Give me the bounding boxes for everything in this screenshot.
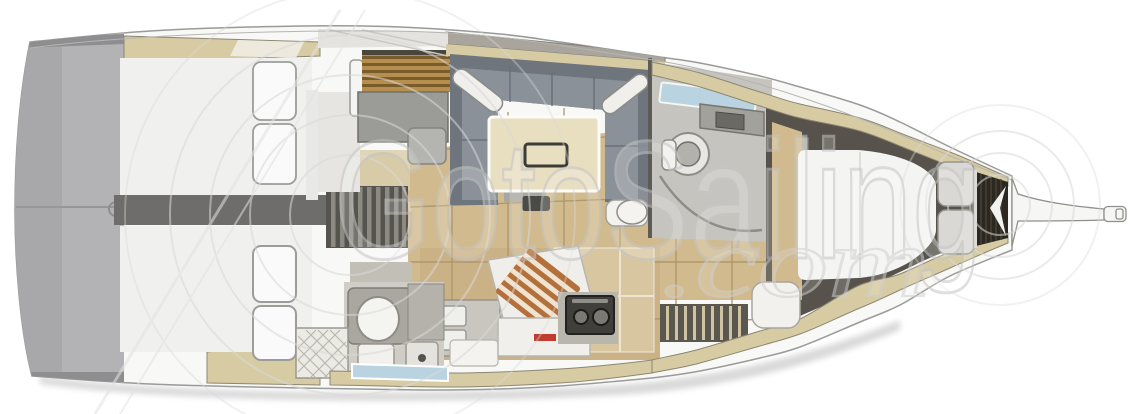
svg-text:.com: .com bbox=[660, 207, 930, 318]
